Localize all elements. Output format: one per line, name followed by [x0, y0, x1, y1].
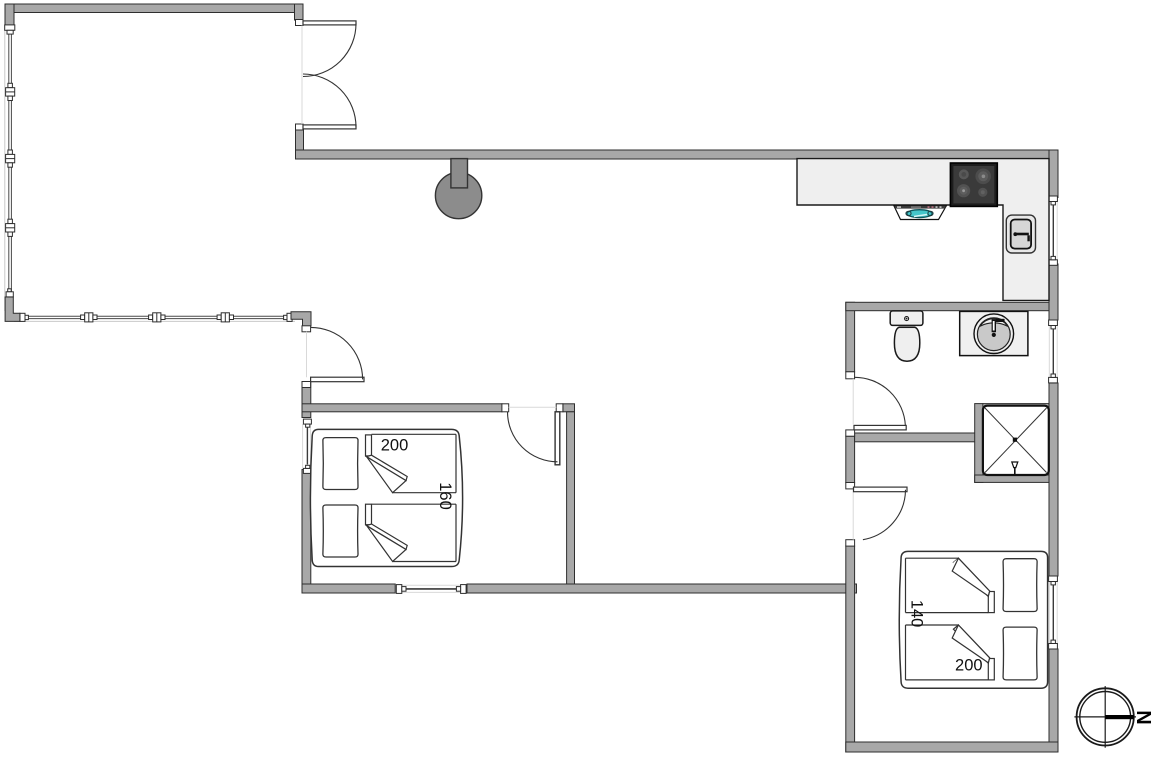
svg-text:200: 200 — [381, 436, 409, 454]
svg-text:200: 200 — [955, 656, 983, 674]
svg-text:140: 140 — [908, 600, 926, 628]
svg-text:N: N — [1132, 710, 1154, 724]
svg-text:160: 160 — [436, 482, 454, 510]
